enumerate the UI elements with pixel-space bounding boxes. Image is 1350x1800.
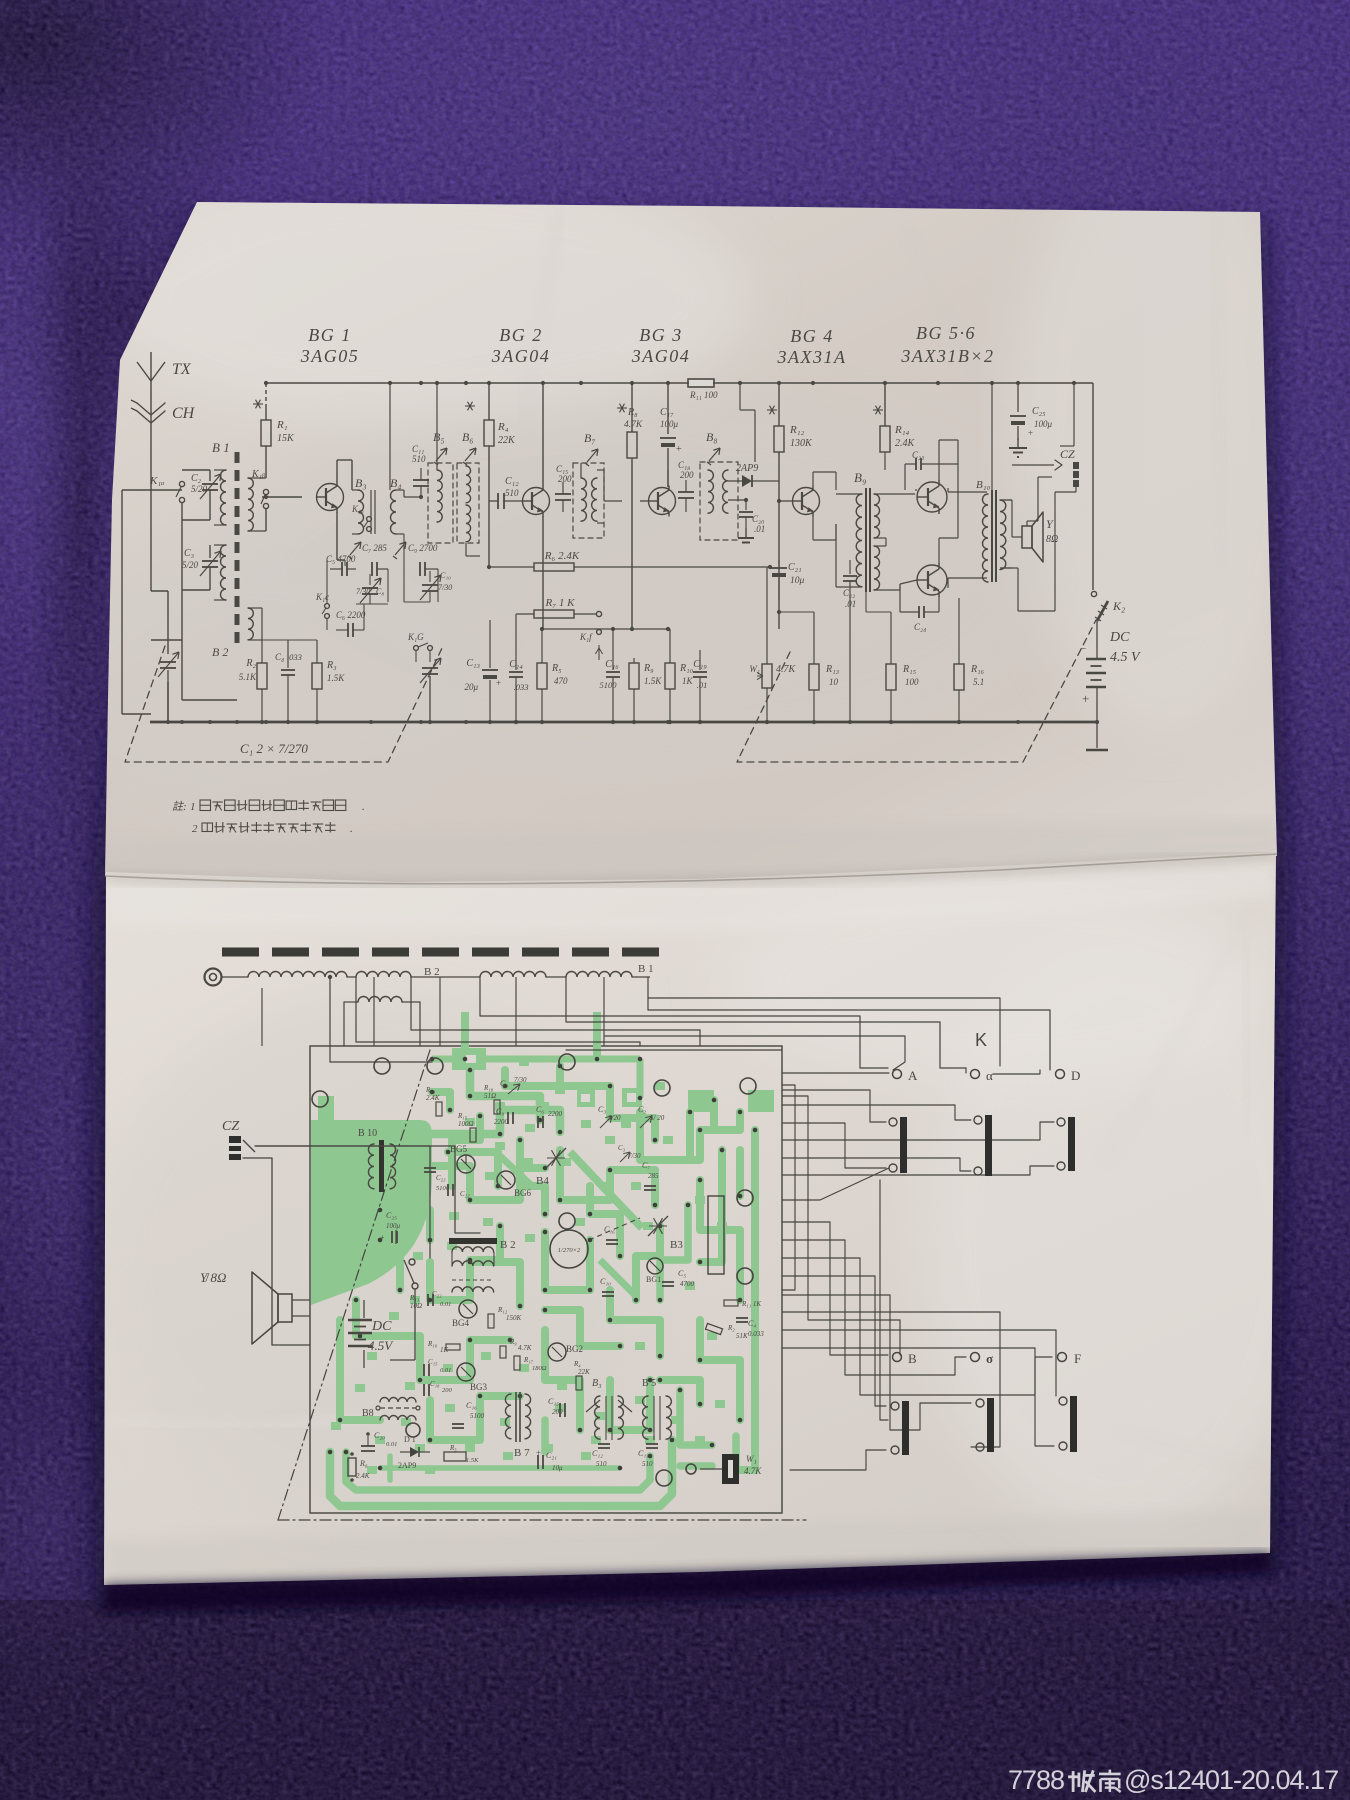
svg-text:8Ω: 8Ω	[1046, 534, 1058, 545]
svg-text:0.01: 0.01	[440, 1301, 451, 1308]
svg-text:B8: B8	[362, 1408, 374, 1419]
svg-text:2200: 2200	[494, 1118, 509, 1126]
svg-text:200: 200	[552, 1408, 563, 1416]
svg-text:K₁ₐ: K₁ₐ	[149, 475, 164, 487]
svg-text:+: +	[380, 1233, 385, 1242]
svg-text:B₇: B₇	[584, 431, 596, 445]
svg-text:B₁₀: B₁₀	[976, 479, 991, 491]
svg-text:1.5K: 1.5K	[466, 1457, 479, 1464]
svg-text:2200: 2200	[548, 1110, 563, 1118]
svg-text:10: 10	[829, 677, 839, 687]
svg-text:100Ω: 100Ω	[458, 1120, 474, 1128]
svg-text:BG 4: BG 4	[790, 326, 834, 346]
svg-text:α: α	[986, 1068, 993, 1083]
svg-text:R₁₂: R₁₂	[497, 1306, 508, 1314]
svg-text:B 2: B 2	[212, 645, 228, 659]
svg-text:C₂: C₂	[191, 473, 202, 484]
svg-text:2.4K: 2.4K	[356, 1472, 370, 1480]
svg-text:10μ: 10μ	[552, 1464, 563, 1472]
svg-text:0.033: 0.033	[748, 1330, 764, 1338]
svg-text:150K: 150K	[506, 1314, 522, 1322]
svg-text:1.5K: 1.5K	[327, 673, 345, 683]
svg-text:R₁₄: R₁₄	[425, 1086, 436, 1094]
svg-text:5/20: 5/20	[182, 560, 199, 570]
svg-text:3AX31B×2: 3AX31B×2	[900, 346, 994, 366]
svg-text:C₂₄: C₂₄	[914, 622, 926, 632]
svg-text:C₁₅: C₁₅	[556, 464, 568, 474]
svg-text:C₆ 2200: C₆ 2200	[336, 610, 366, 620]
svg-text:C₁₃: C₁₃	[466, 658, 480, 669]
svg-text:R₆: R₆	[359, 1459, 368, 1468]
svg-text:C₃: C₃	[184, 548, 195, 559]
svg-text:C₂: C₂	[638, 1105, 646, 1114]
svg-text:B 2: B 2	[500, 1239, 516, 1251]
svg-text:2: 2	[192, 823, 198, 835]
svg-text:5.1K: 5.1K	[239, 672, 257, 682]
svg-text:B 1: B 1	[212, 440, 230, 455]
svg-text:0.01: 0.01	[440, 1367, 451, 1374]
svg-text:C₁₆: C₁₆	[605, 659, 619, 670]
svg-text:10μ: 10μ	[790, 576, 805, 586]
svg-text:BG3: BG3	[470, 1382, 488, 1392]
svg-text:B4: B4	[536, 1175, 549, 1187]
svg-text:4700: 4700	[680, 1280, 695, 1288]
svg-text:C₁₆: C₁₆	[466, 1401, 477, 1410]
svg-text:R₁₂: R₁₂	[789, 424, 805, 436]
svg-text:R₉: R₉	[643, 663, 654, 674]
svg-text:R₁: R₁	[276, 419, 288, 431]
svg-text:C₆: C₆	[536, 1105, 544, 1114]
svg-text:100μ: 100μ	[386, 1222, 401, 1230]
svg-text:C₂₁: C₂₁	[546, 1451, 557, 1460]
svg-text:51K: 51K	[736, 1332, 748, 1340]
svg-text:Y̸ 8Ω: Y̸ 8Ω	[200, 1270, 226, 1285]
svg-text:3AG05: 3AG05	[300, 346, 360, 366]
svg-text:R₂: R₂	[245, 658, 256, 669]
svg-text:4.5 V: 4.5 V	[1110, 650, 1141, 665]
svg-text:5100: 5100	[470, 1412, 485, 1420]
svg-text:D 1: D 1	[404, 1435, 416, 1444]
svg-text:B₆: B₆	[462, 430, 474, 444]
svg-text:B 2: B 2	[424, 966, 440, 978]
svg-text:R₅: R₅	[551, 663, 562, 674]
svg-text:R₁₅: R₁₅	[902, 664, 917, 675]
svg-text:BG1: BG1	[646, 1275, 661, 1284]
svg-text:R₁₈: R₁₈	[483, 1084, 494, 1092]
svg-text:C₂₂: C₂₂	[843, 588, 855, 598]
svg-text:K₂: K₂	[1112, 599, 1125, 613]
svg-text:B3: B3	[670, 1239, 683, 1251]
svg-text:B 7: B 7	[514, 1447, 530, 1459]
svg-text:4.7K: 4.7K	[624, 420, 643, 430]
svg-text:K₁ₐ: K₁ₐ	[351, 504, 364, 514]
svg-text:K₁ᵦ: K₁ᵦ	[251, 469, 265, 480]
svg-text:3AG04: 3AG04	[491, 346, 551, 366]
svg-text:+: +	[1082, 691, 1089, 706]
svg-text:R₃: R₃	[326, 660, 337, 671]
svg-text:1.5K: 1.5K	[644, 676, 662, 686]
svg-text:BG4: BG4	[452, 1318, 470, 1328]
svg-text:510: 510	[596, 1460, 607, 1468]
svg-text:R₇ 1 K: R₇ 1 K	[545, 597, 576, 609]
svg-text:7/30: 7/30	[514, 1076, 527, 1084]
svg-text:註:: 註:	[172, 800, 187, 813]
svg-text:R₁₆: R₁₆	[970, 664, 985, 675]
svg-text:C₂₅: C₂₅	[1032, 406, 1046, 417]
svg-text:C₁₁: C₁₁	[412, 444, 424, 454]
svg-text:B 5: B 5	[642, 1378, 656, 1389]
svg-text:100: 100	[905, 677, 919, 687]
svg-text:C₂₁: C₂₁	[788, 562, 802, 573]
svg-text:510: 510	[642, 1460, 653, 1468]
svg-text:C₁₅: C₁₅	[548, 1397, 559, 1406]
svg-text:1K: 1K	[682, 676, 694, 686]
svg-text:C₂₀: C₂₀	[374, 1431, 385, 1440]
svg-text:C₁₈: C₁₈	[430, 1380, 440, 1388]
svg-text:.01: .01	[845, 599, 856, 609]
svg-text:470: 470	[554, 676, 568, 686]
svg-text:W₁: W₁	[749, 664, 760, 674]
svg-text:B 10: B 10	[358, 1128, 377, 1139]
svg-text:R₁₇: R₁₇	[523, 1356, 534, 1364]
svg-text:1: 1	[190, 801, 196, 813]
svg-text:C₉ 2700: C₉ 2700	[408, 543, 438, 553]
svg-text:51Ω: 51Ω	[484, 1092, 496, 1100]
svg-text:TX: TX	[172, 361, 192, 378]
svg-text:B₉: B₉	[854, 470, 866, 485]
svg-text:DC: DC	[371, 1319, 392, 1334]
svg-text:C₁ 2 × 7/270: C₁ 2 × 7/270	[240, 741, 308, 756]
svg-text:B₃: B₃	[592, 1378, 602, 1389]
svg-text:C₇: C₇	[642, 1161, 650, 1170]
svg-text:C₁₀: C₁₀	[440, 571, 451, 580]
svg-text:σ: σ	[986, 1351, 993, 1366]
svg-text:200: 200	[442, 1387, 453, 1394]
svg-text:+: +	[496, 678, 501, 688]
svg-text:B₄: B₄	[390, 476, 402, 490]
svg-text:R₆ 2.4K: R₆ 2.4K	[544, 550, 580, 562]
svg-text:200: 200	[558, 474, 572, 484]
svg-text:R₁₁ 1K: R₁₁ 1K	[741, 1300, 761, 1308]
svg-text:R₂: R₂	[727, 1324, 735, 1332]
svg-text:22K: 22K	[578, 1368, 590, 1376]
svg-text:A: A	[908, 1068, 918, 1083]
svg-text:.: .	[350, 823, 353, 835]
svg-text:C₂₂: C₂₂	[432, 1290, 442, 1298]
svg-text:K: K	[975, 1030, 987, 1050]
svg-text:F: F	[1074, 1351, 1081, 1366]
svg-text:CZ: CZ	[222, 1119, 239, 1134]
svg-text:C₁₆: C₁₆	[604, 1225, 615, 1234]
svg-text:5.1: 5.1	[973, 677, 984, 687]
svg-text:C₂₂: C₂₂	[460, 1190, 470, 1198]
svg-text:180Ω: 180Ω	[532, 1365, 547, 1372]
svg-text:R₅: R₅	[449, 1444, 457, 1452]
svg-text:BG 3: BG 3	[639, 325, 683, 345]
svg-text:B 1: B 1	[638, 963, 654, 975]
svg-text:C₂₃: C₂₃	[436, 1174, 446, 1182]
svg-text:100μ: 100μ	[660, 419, 679, 429]
svg-text:7/30: 7/30	[438, 583, 452, 592]
svg-text:.01: .01	[697, 680, 708, 690]
svg-text:C₃: C₃	[598, 1105, 606, 1114]
svg-text:.01: .01	[754, 524, 765, 534]
svg-text:510: 510	[412, 454, 426, 464]
svg-text:W₁: W₁	[746, 1454, 757, 1464]
svg-text:C₉: C₉	[496, 1107, 504, 1116]
svg-text:C₁₂: C₁₂	[592, 1449, 603, 1458]
svg-text:C₁₈: C₁₈	[678, 460, 690, 470]
svg-text:K₁f: K₁f	[579, 632, 593, 642]
svg-text:K₁G: K₁G	[407, 632, 424, 642]
svg-text:130K: 130K	[790, 438, 813, 449]
svg-text:C₂₃: C₂₃	[912, 450, 924, 460]
svg-text:D: D	[1071, 1068, 1080, 1083]
svg-text:C₇ 285: C₇ 285	[362, 543, 387, 553]
svg-text:R₄: R₄	[497, 421, 509, 433]
svg-text:22K: 22K	[498, 435, 516, 446]
svg-text:C₂₀: C₂₀	[752, 514, 764, 524]
svg-text:.: .	[362, 801, 365, 813]
svg-text:C₈: C₈	[500, 1079, 508, 1088]
svg-text:BG 2: BG 2	[499, 325, 543, 345]
svg-text:R₁₀: R₁₀	[679, 663, 694, 674]
svg-text:C₄: C₄	[748, 1319, 756, 1328]
svg-text:C₂₅: C₂₅	[386, 1211, 397, 1220]
svg-text:4.7K: 4.7K	[518, 1344, 532, 1352]
svg-text:.033: .033	[287, 652, 302, 662]
svg-text:15K: 15K	[277, 433, 295, 444]
svg-text:C₁₂: C₁₂	[505, 476, 519, 487]
svg-text:R₁₀: R₁₀	[427, 1340, 438, 1348]
svg-text:100μ: 100μ	[1034, 419, 1053, 429]
svg-text:2AP9: 2AP9	[398, 1461, 416, 1470]
svg-text:1/270×2: 1/270×2	[558, 1247, 581, 1254]
svg-text:C₄: C₄	[275, 652, 284, 662]
svg-text:+: +	[676, 444, 682, 455]
svg-text:510: 510	[505, 488, 519, 498]
svg-text:R₁₄: R₁₄	[894, 424, 910, 436]
svg-text:2.4K: 2.4K	[426, 1094, 440, 1102]
svg-text:BG6: BG6	[514, 1188, 532, 1198]
svg-text:200: 200	[680, 470, 694, 480]
svg-text:R₁₅: R₁₅	[457, 1112, 468, 1120]
svg-text:B₃: B₃	[355, 476, 367, 490]
svg-text:C₃: C₃	[618, 1144, 626, 1152]
svg-text:CZ: CZ	[1060, 447, 1075, 461]
svg-text:3AX31A: 3AX31A	[777, 347, 847, 367]
svg-text:BG 5·6: BG 5·6	[916, 323, 976, 343]
svg-text:R₁₃: R₁₃	[825, 664, 840, 675]
svg-text:2.4K: 2.4K	[895, 438, 916, 449]
svg-text:+: +	[1028, 428, 1033, 438]
svg-text:R₁₁ 100: R₁₁ 100	[689, 390, 718, 400]
svg-text:20μ: 20μ	[464, 682, 478, 692]
svg-text:C₁₁: C₁₁	[638, 1449, 649, 1458]
svg-text:@s12401-20.04.17: @s12401-20.04.17	[1124, 1765, 1338, 1795]
svg-text:7788: 7788	[1008, 1765, 1064, 1795]
svg-text:2AP9: 2AP9	[736, 463, 758, 474]
svg-text:B: B	[908, 1351, 917, 1366]
svg-text:BG 1: BG 1	[308, 325, 352, 345]
svg-text:0.01: 0.01	[386, 1441, 397, 1448]
svg-text:R₉: R₉	[509, 1338, 517, 1346]
svg-text:BG2: BG2	[566, 1344, 583, 1354]
svg-text:3AG04: 3AG04	[631, 346, 691, 366]
svg-text:B₅: B₅	[433, 430, 445, 444]
svg-text:C₅: C₅	[678, 1269, 686, 1278]
svg-text:CH: CH	[172, 405, 196, 422]
svg-text:285: 285	[648, 1172, 659, 1180]
svg-text:DC: DC	[1109, 630, 1130, 645]
svg-text:5100: 5100	[600, 680, 618, 690]
svg-text:B₈: B₈	[706, 430, 718, 444]
svg-text:C₁₀: C₁₀	[600, 1277, 611, 1286]
svg-text:R₄: R₄	[573, 1360, 581, 1368]
svg-text:5/ 20: 5/ 20	[650, 1114, 665, 1122]
svg-text:4.7K: 4.7K	[744, 1466, 762, 1476]
svg-text:10Ω: 10Ω	[410, 1302, 422, 1310]
svg-text:C₁₇: C₁₇	[660, 407, 674, 418]
